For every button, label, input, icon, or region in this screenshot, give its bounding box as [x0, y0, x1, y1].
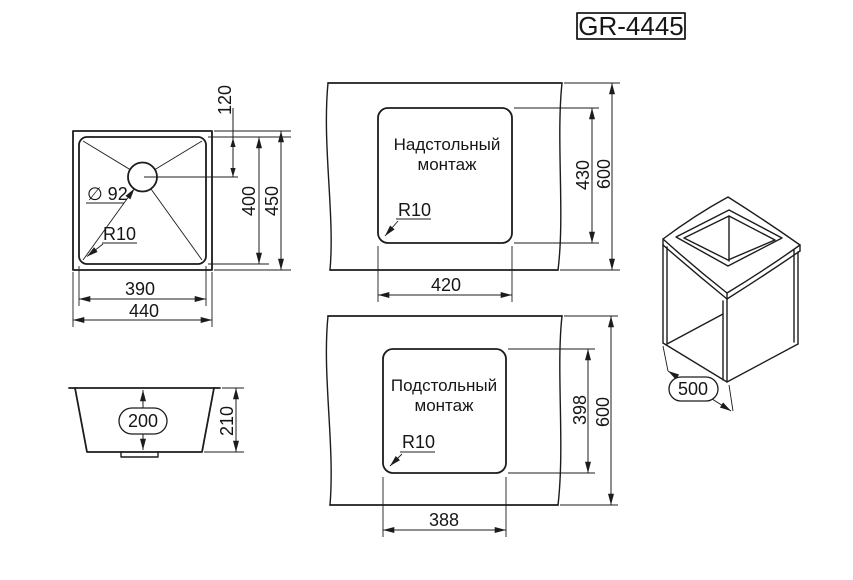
break-line-left-2 — [326, 316, 331, 505]
title-box: GR-4445 — [577, 11, 685, 41]
drain-diameter-label: ∅ 92 — [87, 184, 128, 204]
break-line-left — [326, 83, 331, 270]
top-view: 390 440 400 450 120 ∅ 92 R10 — [73, 85, 291, 327]
countertop-outline — [326, 83, 562, 270]
break-line-right — [558, 83, 562, 270]
overmount-caption-1: Надстольный — [394, 135, 501, 154]
dim-outer-depth: 450 — [262, 186, 282, 216]
dim-bowl-depth: 200 — [128, 411, 158, 431]
break-line-right-2 — [558, 316, 562, 505]
corner-radius-label: R10 — [103, 224, 136, 244]
dim-cabinet-width: 500 — [678, 379, 708, 399]
corner-radius-callout: R10 — [87, 224, 137, 257]
radius-leader-arrow — [87, 244, 103, 257]
dim-counter-depth-600-bottom: 600 — [593, 397, 613, 427]
dim-cutout-height-398: 398 — [570, 395, 590, 425]
dim-cutout-width-388: 388 — [429, 510, 459, 530]
undermount-view: Подстольный монтаж R10 388 398 600 — [326, 316, 618, 537]
cabinet-top-rim — [663, 197, 800, 299]
overmount-radius-callout: R10 — [385, 200, 431, 236]
dim-overall-height: 210 — [217, 406, 237, 436]
undermount-radius-label: R10 — [402, 432, 435, 452]
dim-outer-width: 440 — [129, 301, 159, 321]
overmount-cutout — [378, 108, 512, 243]
overmount-view: Надстольный монтаж R10 420 430 600 — [326, 83, 620, 302]
overmount-caption-2: монтаж — [418, 155, 478, 174]
undermount-caption-2: монтаж — [415, 396, 475, 415]
technical-drawing: GR-4445 — [0, 0, 853, 580]
side-view: 200 210 — [69, 388, 244, 457]
undermount-caption-1: Подстольный — [391, 376, 497, 395]
drain-diameter-callout: ∅ 92 — [86, 184, 128, 204]
dim-cutout-height-430: 430 — [573, 160, 593, 190]
drawing-sheet: GR-4445 — [0, 0, 853, 580]
undermount-radius-callout: R10 — [390, 432, 435, 466]
model-title: GR-4445 — [578, 11, 684, 41]
dim-inner-depth: 400 — [239, 186, 259, 216]
cabinet-iso-view: 500 — [663, 197, 800, 411]
overmount-radius-label: R10 — [398, 200, 431, 220]
dim-cutout-width-420: 420 — [431, 275, 461, 295]
dim-counter-depth-600-top: 600 — [594, 159, 614, 189]
dim-inner-width: 390 — [125, 279, 155, 299]
dim-drain-offset: 120 — [215, 85, 235, 115]
